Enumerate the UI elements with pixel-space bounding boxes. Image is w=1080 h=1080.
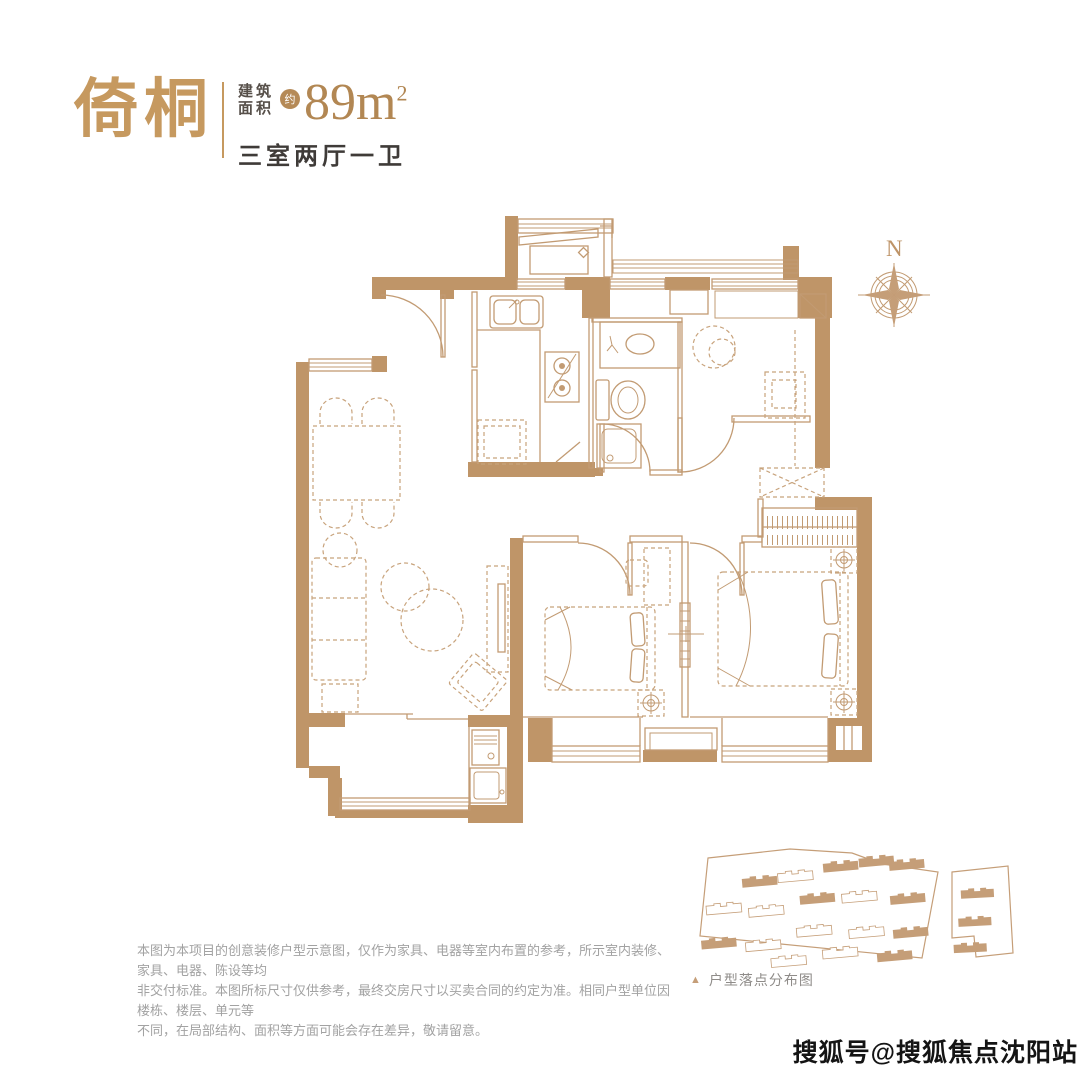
site-map-caption-text: 户型落点分布图 xyxy=(709,970,814,990)
ottoman xyxy=(322,684,358,712)
armchair xyxy=(448,653,507,712)
site-map-caption: ▲ 户型落点分布图 xyxy=(690,970,814,990)
ceiling-lamp-icon xyxy=(831,689,857,715)
kitchen-sink xyxy=(490,296,543,328)
desk xyxy=(765,372,805,418)
toilet xyxy=(596,380,645,420)
side-table xyxy=(323,533,357,567)
watermark: 搜狐号@搜狐焦点沈阳站 xyxy=(793,1033,1078,1069)
living-room-furniture xyxy=(312,533,508,712)
stove xyxy=(545,352,579,402)
storage-cabinet xyxy=(760,468,824,497)
balcony-appliances xyxy=(470,730,506,803)
tv xyxy=(498,584,505,652)
bedroom1-furniture xyxy=(545,548,670,716)
sofa xyxy=(312,558,366,680)
compass-icon: N xyxy=(858,236,930,327)
coffee-table xyxy=(401,589,463,651)
site-map xyxy=(695,849,1013,977)
disclaimer-line: 非交付标准。本图所标尺寸仅供参考，最终交房尺寸以买卖合同的约定为准。相同户型单位… xyxy=(137,981,677,1021)
windows-and-partitions xyxy=(309,219,828,810)
fridge xyxy=(478,420,526,464)
doors xyxy=(381,295,744,595)
desk xyxy=(644,548,670,605)
svg-text:N: N xyxy=(886,236,903,261)
bathroom-fixtures xyxy=(596,322,680,468)
dining-set xyxy=(313,398,400,528)
disclaimer-line: 本图为本项目的创意装修户型示意图，仅作为家具、电器等室内布置的参考，所示室内装修… xyxy=(137,941,677,981)
floor-plan-drawing: N xyxy=(0,0,1080,1080)
disclaimer: 本图为本项目的创意装修户型示意图，仅作为家具、电器等室内布置的参考，所示室内装修… xyxy=(137,941,677,1041)
triangle-marker-icon: ▲ xyxy=(690,974,702,986)
bed xyxy=(718,572,848,686)
vanity xyxy=(600,322,680,368)
disclaimer-line: 不同，在局部结构、面积等方面可能会存在差异，敬请留意。 xyxy=(137,1021,677,1041)
kitchen-fixtures xyxy=(478,296,579,464)
chair xyxy=(626,560,648,586)
ceiling-lamp-icon xyxy=(638,690,664,716)
ceiling-lamp-icon xyxy=(831,547,857,573)
wardrobe xyxy=(762,508,857,547)
